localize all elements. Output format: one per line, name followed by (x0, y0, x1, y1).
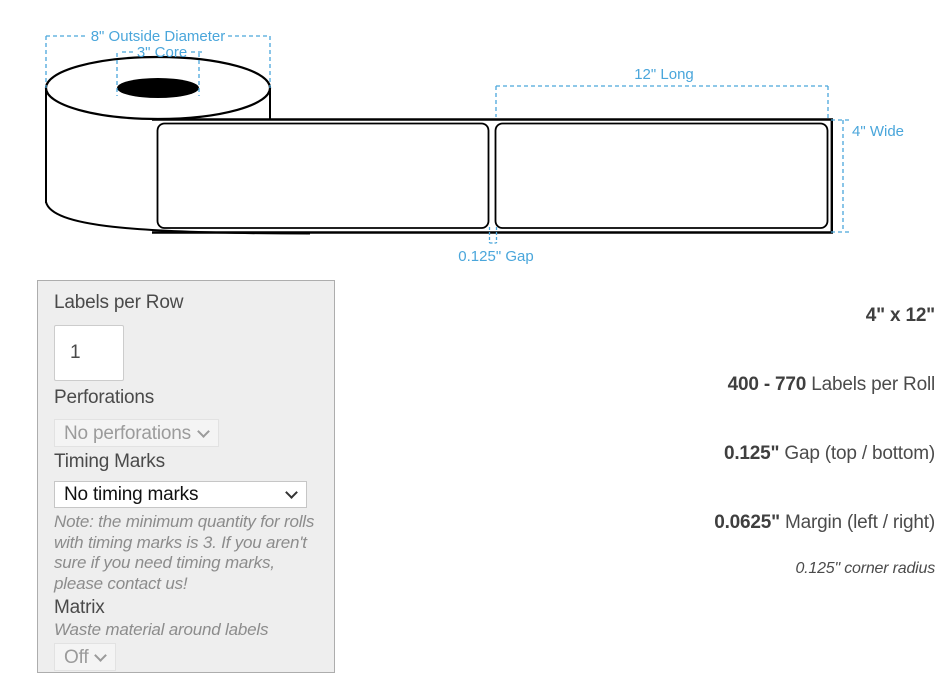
length-dim-lines (496, 86, 828, 118)
matrix-select[interactable]: Off (54, 643, 116, 671)
label-1 (158, 124, 489, 229)
spec-gap: 0.125" Gap (top / bottom) (694, 419, 935, 488)
width-label: 4" Wide (852, 123, 904, 140)
spec-labels-per-roll-value: 400 - 770 (728, 374, 807, 395)
spec-margin-text: Margin (left / right) (780, 512, 935, 533)
chevron-down-icon (95, 649, 108, 662)
spec-gap-text: Gap (top / bottom) (779, 443, 935, 464)
timing-marks-select[interactable]: No timing marks (54, 481, 307, 508)
spec-size-value: 4" x 12" (866, 305, 935, 326)
chevron-down-icon (197, 425, 210, 438)
spec-margin: 0.0625" Margin (left / right) (694, 488, 935, 557)
core-label: 3" Core (137, 44, 187, 61)
roll-core (117, 78, 199, 98)
spec-margin-value: 0.0625" (714, 512, 780, 533)
roll-diagram: 8" Outside Diameter 3" Core 12" Long 4" … (0, 0, 951, 272)
spec-size: 4" x 12" (694, 281, 935, 350)
label-2 (496, 124, 828, 229)
specs-summary: 4" x 12" 400 - 770 Labels per Roll 0.125… (694, 281, 935, 580)
spec-labels-per-roll: 400 - 770 Labels per Roll (694, 350, 935, 419)
spec-corner-radius: 0.125" corner radius (694, 557, 935, 580)
gap-label: 0.125" Gap (458, 248, 533, 265)
perforations-select[interactable]: No perforations (54, 419, 219, 447)
labels-per-row-input[interactable] (54, 325, 124, 381)
timing-marks-heading: Timing Marks (54, 450, 318, 473)
options-panel: Labels per Row Perforations No perforati… (37, 280, 335, 673)
matrix-select-value: Off (64, 645, 88, 670)
perforations-heading: Perforations (54, 386, 318, 409)
timing-marks-note: Note: the minimum quantity for rolls wit… (54, 512, 318, 594)
length-label: 12" Long (634, 66, 694, 83)
labels-per-row-heading: Labels per Row (54, 291, 318, 314)
matrix-description: Waste material around labels (54, 619, 318, 640)
width-dim-lines (831, 120, 849, 232)
spec-labels-per-roll-text: Labels per Roll (806, 374, 935, 395)
perforations-select-value: No perforations (64, 421, 191, 446)
spec-gap-value: 0.125" (724, 443, 779, 464)
timing-marks-select-value: No timing marks (64, 482, 198, 507)
matrix-heading: Matrix (54, 596, 318, 619)
chevron-down-icon (285, 486, 298, 499)
outside-diameter-label: 8" Outside Diameter (91, 28, 226, 45)
